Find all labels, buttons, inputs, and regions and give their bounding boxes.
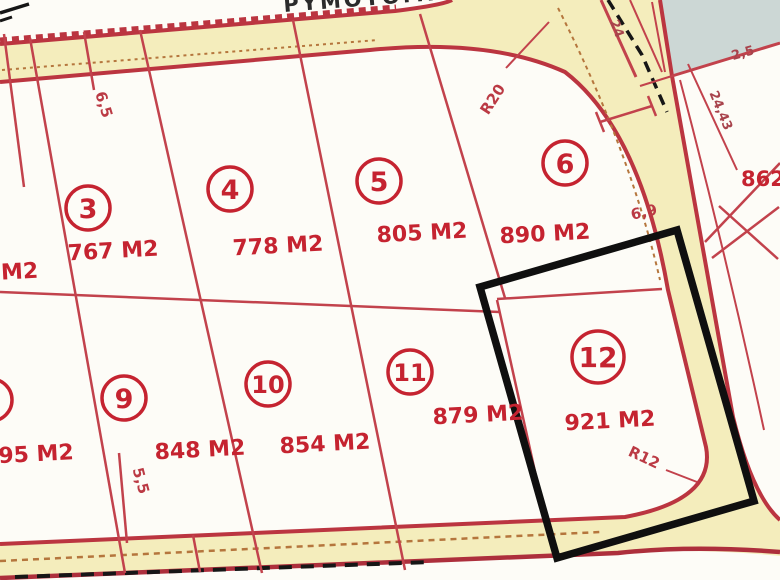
plot-number: 11 xyxy=(393,359,426,387)
plot-area: 879 M2 xyxy=(432,401,524,431)
plot-area: M2 xyxy=(0,259,38,286)
plot-4: 4 778 M2 xyxy=(208,167,324,261)
plot-5: 5 805 M2 xyxy=(357,159,468,248)
plot-12: 12 921 M2 xyxy=(564,331,656,436)
plot-number: 4 xyxy=(221,175,240,206)
plot-area: 778 M2 xyxy=(232,232,324,262)
cadastral-map-screenshot: ΡΥΜΟΤΟΜΙΑ M2 3 767 M2 4 778 M2 5 805 M2 … xyxy=(0,0,780,580)
plot-area: 921 M2 xyxy=(564,407,656,437)
parcel-boundary-b1 xyxy=(30,38,125,573)
plot-number: 3 xyxy=(79,194,98,225)
parcel-boundary-b3 xyxy=(293,20,405,570)
plot-10: 10 854 M2 xyxy=(246,362,371,459)
dim-5-5: 5,5 xyxy=(129,466,153,496)
plot-number: 10 xyxy=(251,371,284,399)
plot-2: M2 xyxy=(0,259,38,286)
plot-area: 848 M2 xyxy=(154,436,246,466)
plot-area: 767 M2 xyxy=(67,237,159,267)
dim-6-5: 6,5 xyxy=(91,89,116,120)
plot-number: 12 xyxy=(579,341,618,374)
plot-area: 854 M2 xyxy=(279,430,371,460)
plot-number: 5 xyxy=(370,167,389,198)
plot-862: 862 xyxy=(741,167,780,191)
plot-area: 862 xyxy=(741,167,780,191)
parcel-boundary-midline xyxy=(0,292,500,312)
cadastral-map: ΡΥΜΟΤΟΜΙΑ M2 3 767 M2 4 778 M2 5 805 M2 … xyxy=(0,0,780,580)
dim-r12: R12 xyxy=(626,442,663,472)
plot-area: 895 M2 xyxy=(0,440,74,470)
plot-number: 6 xyxy=(556,149,575,180)
parcel-boundary-b4 xyxy=(420,14,505,298)
plot-9: 9 848 M2 xyxy=(102,376,246,465)
plot-area: 805 M2 xyxy=(376,219,468,249)
plot-8: 895 M2 xyxy=(0,379,74,470)
plot-area: 890 M2 xyxy=(499,220,591,250)
plot-number: 9 xyxy=(115,384,134,415)
corner-mark xyxy=(0,4,29,21)
plot-number-circle xyxy=(0,379,12,421)
r12-leader-line xyxy=(666,470,697,482)
plot-3: 3 767 M2 xyxy=(66,186,159,266)
plot12-top-boundary xyxy=(497,289,662,299)
dimension-line-5-5 xyxy=(119,453,127,543)
dim-r20: R20 xyxy=(476,81,509,118)
offmap-area xyxy=(655,0,780,76)
plot-6: 6 890 M2 xyxy=(499,141,591,249)
